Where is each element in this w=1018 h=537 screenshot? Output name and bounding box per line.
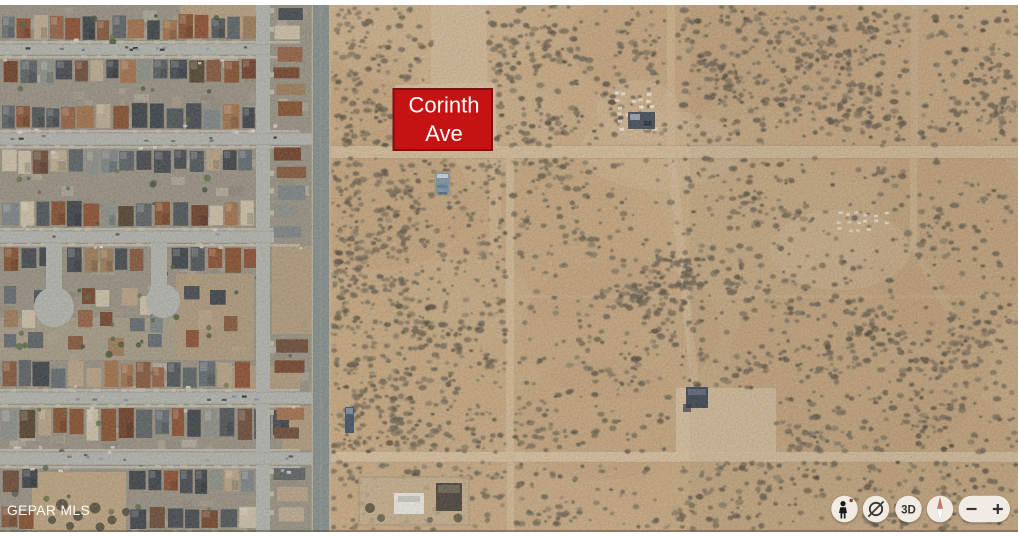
- svg-text:GEPAR MLS: GEPAR MLS: [7, 503, 90, 518]
- svg-text:Corinth: Corinth: [409, 93, 480, 118]
- svg-text:3D: 3D: [901, 504, 916, 516]
- svg-text:Ave: Ave: [425, 121, 463, 146]
